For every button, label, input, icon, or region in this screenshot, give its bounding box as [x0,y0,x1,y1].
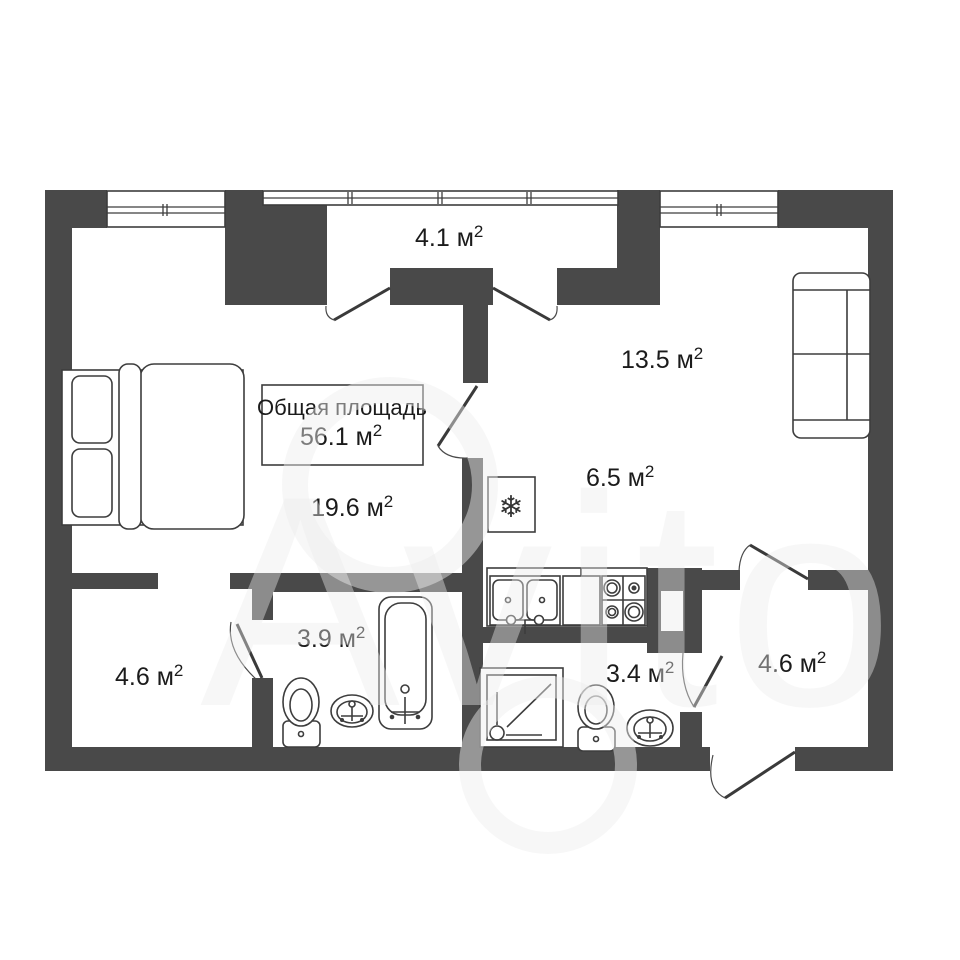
label-living-room-area: 13.5 м2 [621,344,703,374]
wall-balcony-mid-block [390,268,493,305]
label-balcony-area: 4.1 м2 [415,222,483,252]
label-closet-area: 4.6 м2 [115,661,183,691]
windows [107,191,778,227]
wall-top-left [72,190,107,228]
wall-block-bedroom-balcony [225,205,327,305]
balcony-bedroom-door [326,288,390,320]
floor-plan-page: ❄ [0,0,960,960]
floor-plan-canvas: ❄ [0,0,960,960]
wall-balcony-right-seg [557,268,618,305]
balcony-living-door [493,288,557,320]
bedroom-window [107,191,225,227]
living-room-window [660,191,778,227]
pillow [72,449,112,517]
watermark: Avito Avito [200,390,902,843]
wall-bedroom-bottom [45,573,158,589]
watermark-text: Avito [200,433,902,769]
wall-bedroom-kitchen-upper [463,305,488,383]
wall-block-balcony-living [617,190,660,305]
pillow [72,376,112,443]
sofa [793,273,870,438]
wall-top-mid-stub [225,190,263,205]
balcony-glazing [263,191,618,205]
